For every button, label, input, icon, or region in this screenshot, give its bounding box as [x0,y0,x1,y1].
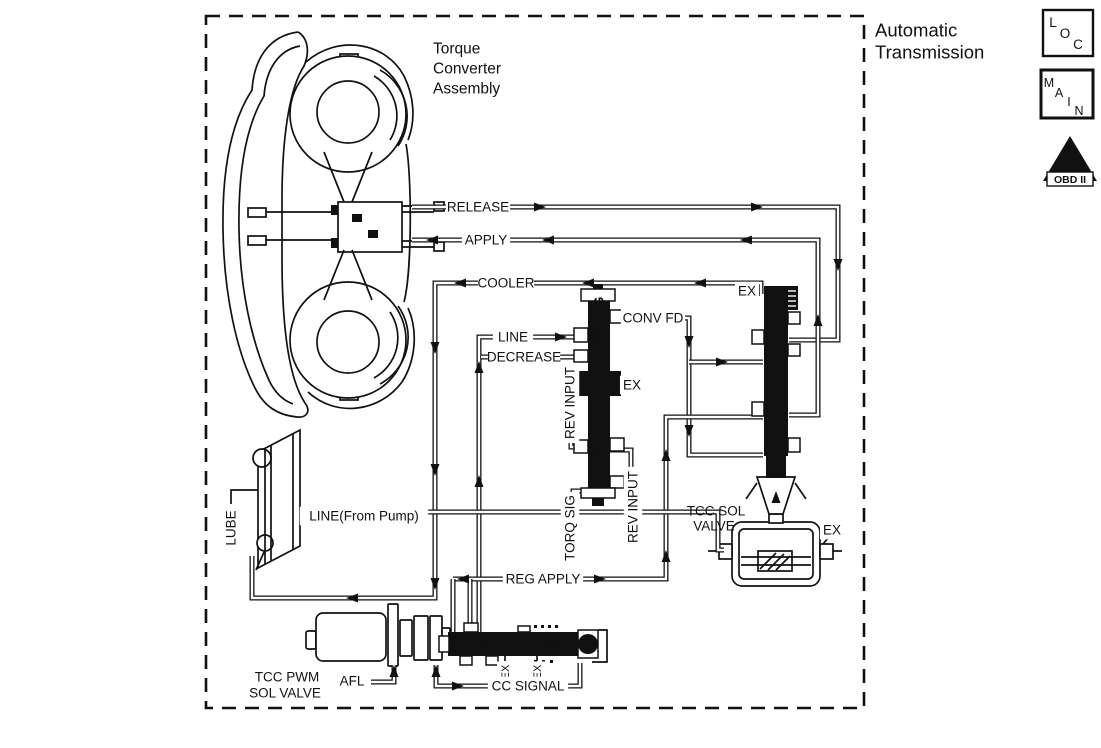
tcc-pwm-sol-valve-label: SOL VALVE [249,686,321,701]
svg-text:Converter: Converter [433,60,501,77]
tcc-sol-valve-label: TCC SOL [687,504,746,519]
loc-letter: O [1060,26,1071,41]
conv-clu-valve-label: CONV CLU VALVE [769,321,784,438]
loc-letter: L [1049,15,1057,30]
svg-text:Torque: Torque [433,40,480,57]
obd2-numeral: II [1063,153,1078,174]
ex-label: EX [735,282,759,301]
transmission-hydraulic-diagram: PRESS REGBOOST VALVECONV CLU VALVEREG AP… [0,0,1101,748]
svg-text:REG APPLY (ISO: REG APPLY (ISO [460,638,572,654]
svg-text:EX: EX [738,284,756,299]
svg-text:DECREASE: DECREASE [487,350,561,365]
obd2-banner: OBD II [1054,174,1086,186]
line-label: LINE [493,328,533,347]
svg-text:BOOST VALVE: BOOST VALVE [591,391,607,489]
diagram-canvas: PRESS REGBOOST VALVECONV CLU VALVEREG AP… [0,0,1101,748]
main-letter: M [1044,76,1054,90]
page-title: Transmission [875,41,984,62]
svg-text:LINE(From Pump): LINE(From Pump) [309,509,419,524]
svg-text:TCC SOL: TCC SOL [687,504,746,519]
svg-text:CONV CLU VALVE: CONV CLU VALVE [769,321,784,438]
svg-text:REG APPLY: REG APPLY [506,572,581,587]
svg-text:REV INPUT: REV INPUT [626,471,641,543]
svg-text:CC SIGNAL: CC SIGNAL [492,679,565,694]
svg-text:LUBE: LUBE [224,510,239,545]
reg-apply-label: REG APPLY [503,570,583,589]
svg-text:EX: EX [823,523,841,538]
cc-signal-label: CC SIGNAL [488,677,568,696]
svg-text:REV INPUT: REV INPUT [563,367,578,439]
torque-converter-label: Converter [433,60,501,77]
ex-label: EX [620,376,644,395]
svg-text:SOL VALVE: SOL VALVE [249,686,321,701]
tcc-sol-valve-label: VALVE [693,519,735,534]
torque-converter-label: Assembly [433,80,500,97]
svg-text:TORQ SIG: TORQ SIG [563,495,578,561]
press-reg-valve-label: PRESS REG [592,297,607,376]
lube-label: LUBE [222,508,241,548]
svg-text:PRESS REG: PRESS REG [592,297,607,376]
release-label: RELEASE [446,198,510,217]
svg-text:AFL: AFL [340,674,365,689]
boost-valve-label: BOOST VALVE [591,391,607,489]
conv-clu-valve-bottom [766,456,786,478]
tcc-pwm-sol-valve-label: TCC PWM [255,670,320,685]
svg-text:Assembly: Assembly [433,80,500,97]
main-letter: A [1055,86,1064,100]
svg-text:Automatic: Automatic [875,19,957,40]
svg-text:APPLY: APPLY [465,233,508,248]
svg-text:EX: EX [623,378,641,393]
torq-sig-label: TORQ SIG [561,492,580,564]
conv-fd-label: CONV FD [621,309,685,328]
rev-input-label: REV INPUT [561,363,580,443]
svg-text:Transmission: Transmission [875,41,984,62]
afl-label: AFL [336,672,368,691]
loc-letter: C [1073,37,1083,52]
ex-label: EX [820,521,844,540]
decrease-label: DECREASE [487,348,561,367]
apply-label: APPLY [462,231,510,250]
svg-text:COOLER: COOLER [477,276,534,291]
main-letter: N [1074,104,1083,118]
page-title: Automatic [875,19,957,40]
svg-text:CONV FD: CONV FD [623,311,684,326]
svg-text:LINE: LINE [498,330,528,345]
svg-text:RELEASE: RELEASE [447,200,509,215]
main-letter: I [1067,95,1070,109]
cooler-label: COOLER [477,274,534,293]
iso-valve-label: REG APPLY (ISO [460,638,572,654]
iso-ball [578,634,598,654]
svg-text:TCC PWM: TCC PWM [255,670,320,685]
torque-converter-label: Torque [433,40,480,57]
line-from-pump-label: LINE(From Pump) [300,507,428,526]
svg-text:VALVE: VALVE [693,519,735,534]
rev-input-label: REV INPUT [624,467,643,547]
